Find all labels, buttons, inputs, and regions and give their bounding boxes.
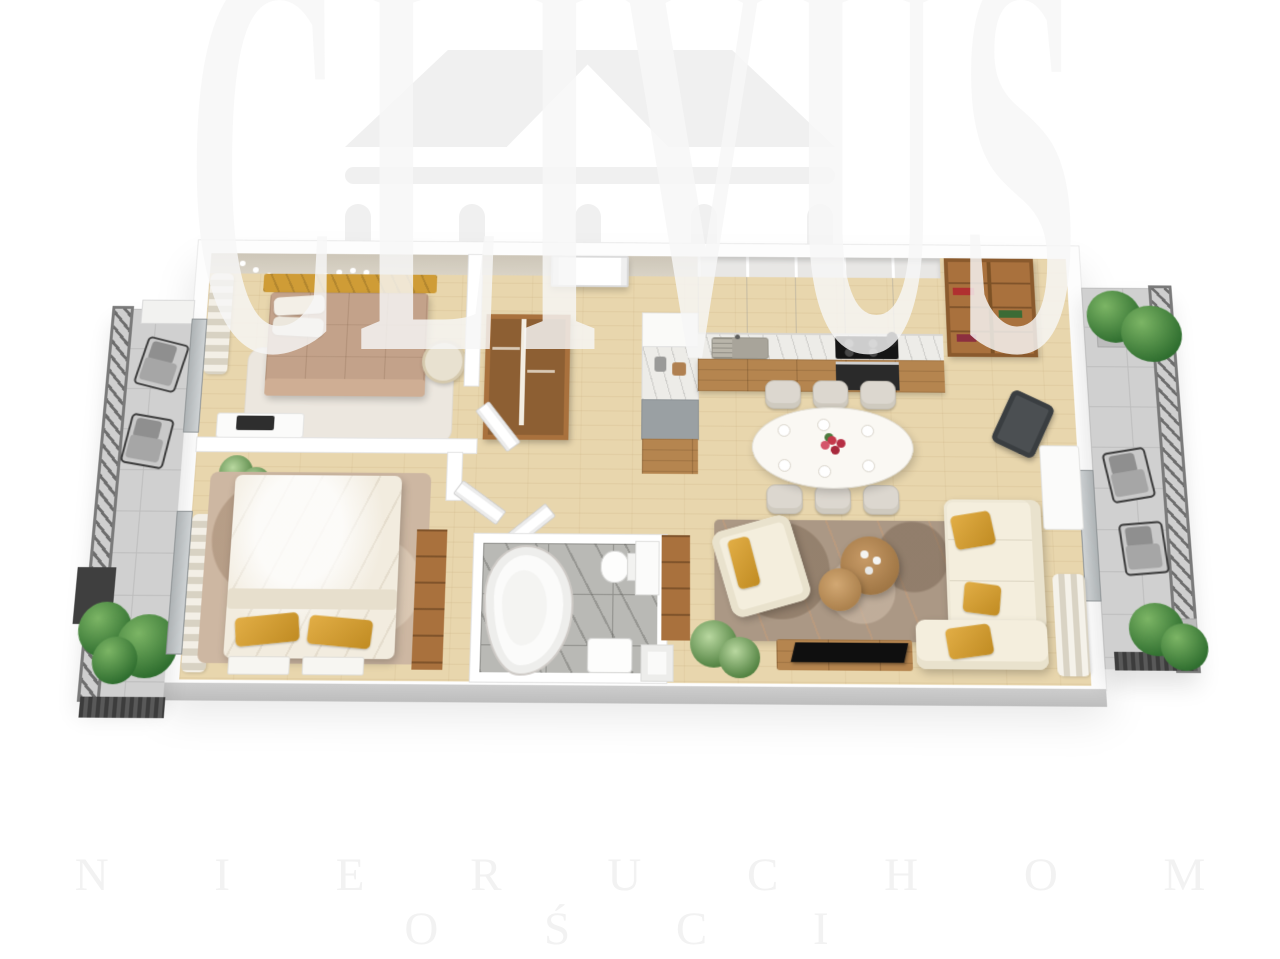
column-cabinet-counter <box>642 347 697 401</box>
bookshelf <box>944 258 1039 357</box>
wardrobe-divider <box>519 319 527 425</box>
jar <box>654 357 666 372</box>
coffee-table-small <box>818 568 862 611</box>
dining-chair <box>812 380 848 409</box>
balcony-left-planter-white <box>141 301 194 324</box>
logo-pediment-icon <box>345 50 835 147</box>
sofa-pillow-mustard <box>962 581 1001 616</box>
bedroom2-bench <box>227 656 290 675</box>
toilet <box>600 551 629 583</box>
bookshelf-divider <box>986 262 994 353</box>
bed1-blanket-fold <box>264 378 425 396</box>
plate <box>818 465 831 478</box>
cooking-pot <box>886 332 898 347</box>
kitchen-open-cubbies <box>698 257 941 279</box>
living-plant <box>719 637 761 679</box>
entrance-door <box>551 256 629 288</box>
faucet <box>735 335 740 340</box>
books <box>999 310 1023 318</box>
balcony-chair <box>1118 521 1170 576</box>
living-tall-cabinet <box>661 535 690 641</box>
laptop <box>236 416 275 431</box>
washer-niche <box>640 644 673 682</box>
plate <box>862 460 875 473</box>
tv <box>791 642 909 662</box>
bedroom1-wall <box>210 253 483 275</box>
coffee-cups <box>860 550 868 558</box>
kitchen-upper-cabinets <box>698 277 943 336</box>
living-desk <box>1039 445 1084 530</box>
living-curtain <box>1052 574 1091 677</box>
wardrobe-rail <box>527 370 555 373</box>
dining-chair <box>863 485 900 515</box>
column-cabinet-top <box>643 313 698 347</box>
floor-plan <box>78 231 1202 728</box>
dining-chair <box>860 381 896 410</box>
bed1-headboard <box>263 274 437 294</box>
bathroom-cabinet <box>635 541 660 596</box>
column-cabinet-mid <box>642 400 698 439</box>
plate <box>777 424 790 437</box>
bed2-pillow-mustard <box>306 615 373 650</box>
bedroom2-bench <box>302 656 365 675</box>
jar <box>672 362 686 375</box>
balcony-left-railing-front <box>78 697 165 719</box>
bed1-pillow <box>274 295 325 317</box>
books <box>957 334 977 342</box>
bed1-pillow <box>272 316 325 338</box>
dining-chair <box>765 380 801 409</box>
clivus-logo-icon <box>345 50 835 250</box>
sofa-pillow-mustard <box>945 623 995 660</box>
sofa-pillow-mustard <box>950 510 997 550</box>
plate <box>778 459 791 472</box>
watermark-subtitle-text: N I E R U C H O M O Ś C I <box>0 848 1280 956</box>
wardrobe-rail <box>492 347 520 350</box>
column-cabinet-base <box>642 439 698 474</box>
washbasin <box>587 638 633 673</box>
dining-chair <box>766 484 803 514</box>
dining-chair <box>814 485 851 515</box>
kitchen-sink <box>712 337 769 359</box>
bed2-blanket-fold <box>227 588 398 610</box>
bedroom2-shelf-unit <box>411 529 447 670</box>
plate <box>817 419 830 432</box>
tulip-vase <box>827 436 836 445</box>
books <box>953 288 975 296</box>
logo-bar <box>345 167 835 184</box>
plate <box>861 425 874 438</box>
wall-bedroom1-bedroom2 <box>196 437 476 453</box>
